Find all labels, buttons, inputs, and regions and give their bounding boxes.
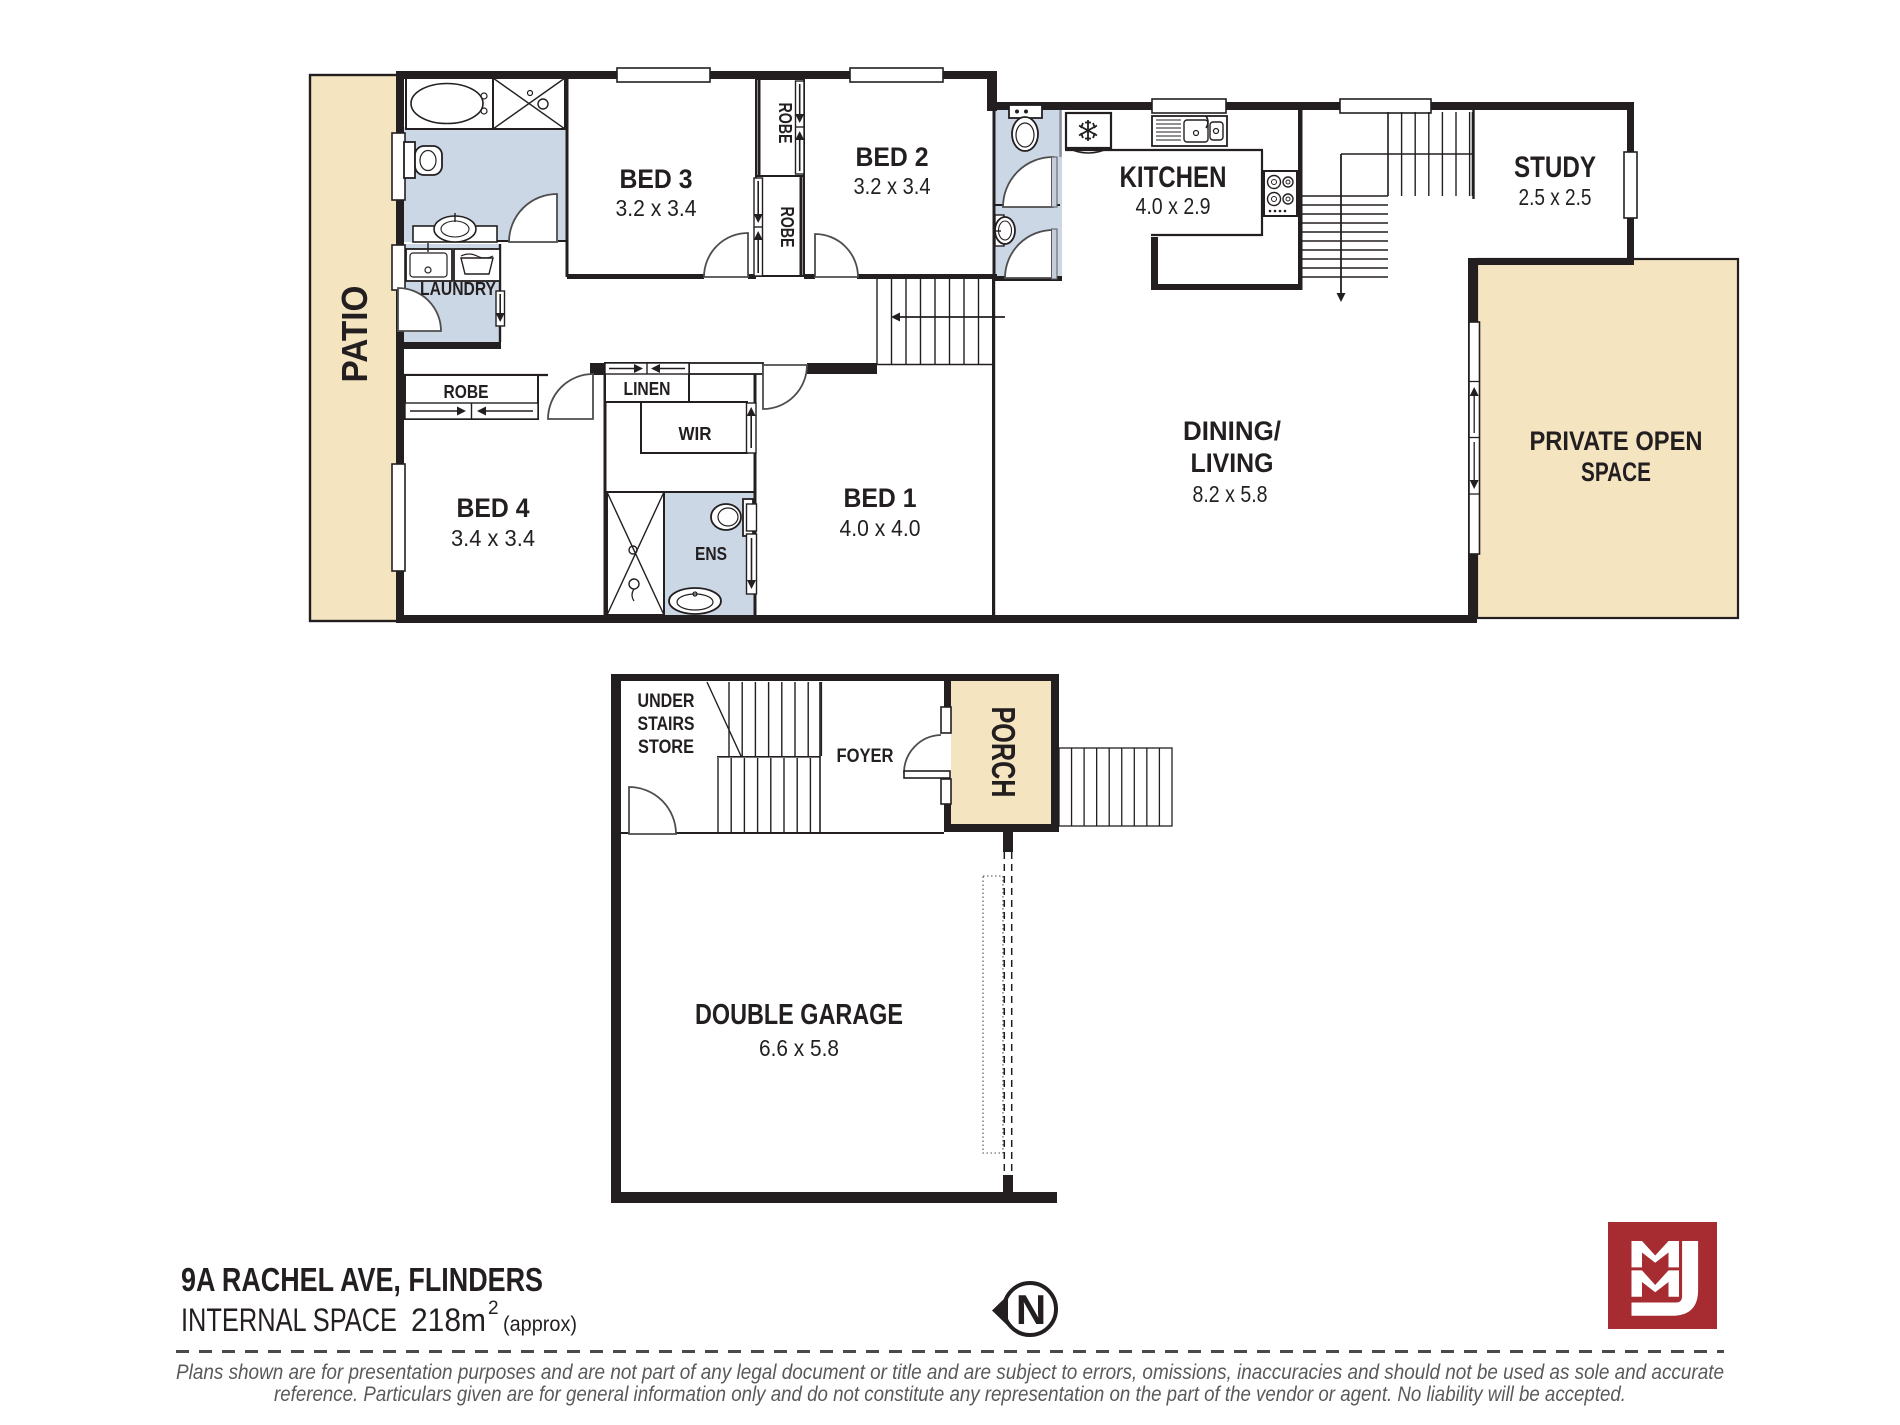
svg-text:(approx): (approx) bbox=[503, 1313, 577, 1336]
svg-text:reference. Particulars given a: reference. Particulars given are for gen… bbox=[274, 1383, 1626, 1406]
svg-text:PRIVATE OPEN: PRIVATE OPEN bbox=[1530, 426, 1703, 456]
svg-text:WIR: WIR bbox=[679, 424, 712, 444]
svg-text:STORE: STORE bbox=[638, 737, 694, 758]
svg-text:KITCHEN: KITCHEN bbox=[1120, 161, 1227, 194]
svg-text:DOUBLE GARAGE: DOUBLE GARAGE bbox=[695, 999, 903, 1031]
svg-text:ENS: ENS bbox=[695, 544, 727, 564]
svg-text:ROBE: ROBE bbox=[775, 103, 795, 144]
svg-text:LAUNDRY: LAUNDRY bbox=[420, 279, 496, 299]
svg-text:2: 2 bbox=[488, 1298, 499, 1319]
svg-text:DINING/: DINING/ bbox=[1183, 416, 1281, 446]
svg-text:4.0 x 2.9: 4.0 x 2.9 bbox=[1136, 193, 1211, 219]
svg-text:STAIRS: STAIRS bbox=[638, 714, 695, 735]
svg-text:PATIO: PATIO bbox=[334, 286, 375, 383]
svg-text:BED 1: BED 1 bbox=[844, 483, 917, 513]
svg-text:INTERNAL SPACE: INTERNAL SPACE bbox=[181, 1302, 397, 1338]
svg-text:SPACE: SPACE bbox=[1581, 457, 1651, 487]
svg-text:BED 2: BED 2 bbox=[856, 142, 929, 172]
svg-text:STUDY: STUDY bbox=[1514, 151, 1596, 184]
svg-text:3.2 x 3.4: 3.2 x 3.4 bbox=[616, 195, 697, 221]
svg-text:2.5 x 2.5: 2.5 x 2.5 bbox=[1519, 184, 1592, 210]
svg-text:PORCH: PORCH bbox=[985, 707, 1022, 798]
svg-text:Plans shown are for presentati: Plans shown are for presentation purpose… bbox=[176, 1361, 1724, 1384]
svg-text:BED 3: BED 3 bbox=[620, 164, 693, 194]
svg-text:UNDER: UNDER bbox=[638, 691, 695, 712]
svg-text:BED 4: BED 4 bbox=[457, 493, 530, 523]
svg-text:218m: 218m bbox=[411, 1302, 486, 1338]
svg-text:3.2 x 3.4: 3.2 x 3.4 bbox=[854, 173, 931, 199]
svg-text:FOYER: FOYER bbox=[837, 746, 894, 767]
svg-text:9A RACHEL AVE, FLINDERS: 9A RACHEL AVE, FLINDERS bbox=[181, 1261, 543, 1298]
svg-text:6.6 x 5.8: 6.6 x 5.8 bbox=[759, 1035, 839, 1061]
svg-text:N: N bbox=[1016, 1286, 1046, 1333]
svg-text:ROBE: ROBE bbox=[777, 207, 797, 248]
svg-text:4.0 x 4.0: 4.0 x 4.0 bbox=[840, 515, 921, 541]
svg-text:LIVING: LIVING bbox=[1191, 448, 1274, 478]
svg-text:8.2 x 5.8: 8.2 x 5.8 bbox=[1193, 481, 1268, 507]
svg-text:ROBE: ROBE bbox=[444, 382, 489, 402]
svg-text:3.4 x 3.4: 3.4 x 3.4 bbox=[451, 525, 535, 551]
svg-text:LINEN: LINEN bbox=[624, 379, 671, 399]
